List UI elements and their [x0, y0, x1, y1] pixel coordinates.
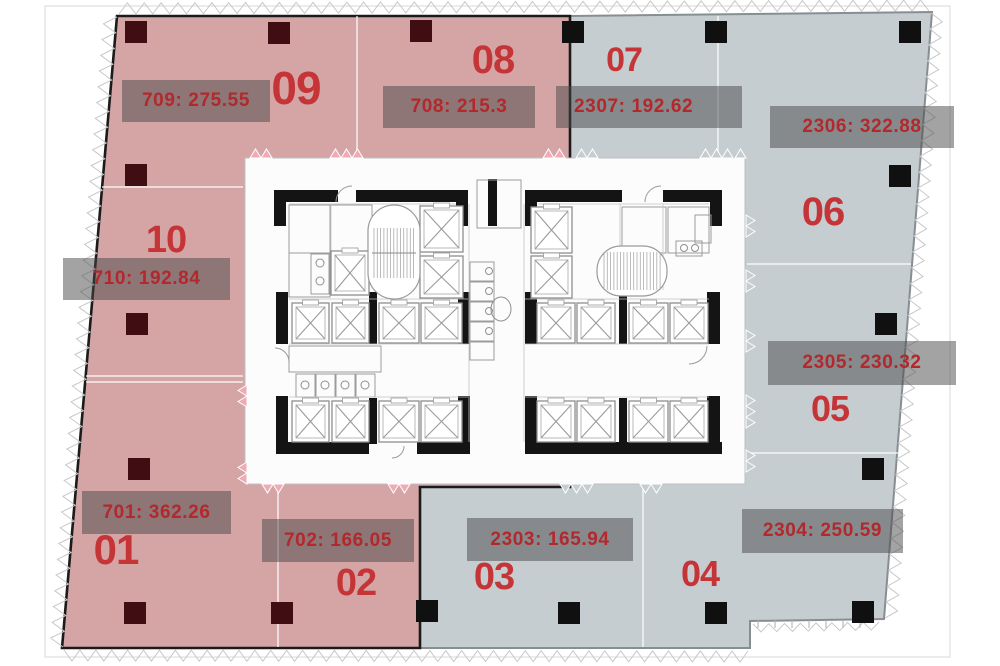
unit-number-08: 08: [472, 40, 515, 80]
unit-label-2303[interactable]: 2303: 165.94: [467, 518, 633, 561]
unit-number-01: 01: [94, 529, 139, 571]
unit-number-06: 06: [802, 192, 845, 232]
unit-label-702[interactable]: 702: 166.05: [262, 519, 414, 562]
unit-label-709[interactable]: 709: 275.55: [122, 80, 270, 122]
unit-number-07: 07: [606, 43, 642, 77]
unit-number-05: 05: [811, 391, 849, 427]
unit-label-2307[interactable]: 2307: 192.62: [556, 86, 742, 128]
unit-label-708[interactable]: 708: 215.3: [383, 86, 535, 128]
unit-label-2304[interactable]: 2304: 250.59: [742, 509, 903, 553]
unit-label-2305[interactable]: 2305: 230.32: [768, 341, 956, 385]
floor-plate-diagram: 709: 275.55 708: 215.3 2307: 192.62 2306…: [0, 0, 1000, 666]
unit-number-09: 09: [271, 65, 320, 111]
unit-label-2306[interactable]: 2306: 322.88: [770, 106, 954, 148]
unit-number-03: 03: [474, 558, 514, 596]
unit-number-02: 02: [336, 564, 376, 602]
unit-number-04: 04: [681, 556, 719, 592]
unit-number-10: 10: [146, 221, 186, 259]
unit-label-710[interactable]: 710: 192.84: [63, 258, 230, 300]
